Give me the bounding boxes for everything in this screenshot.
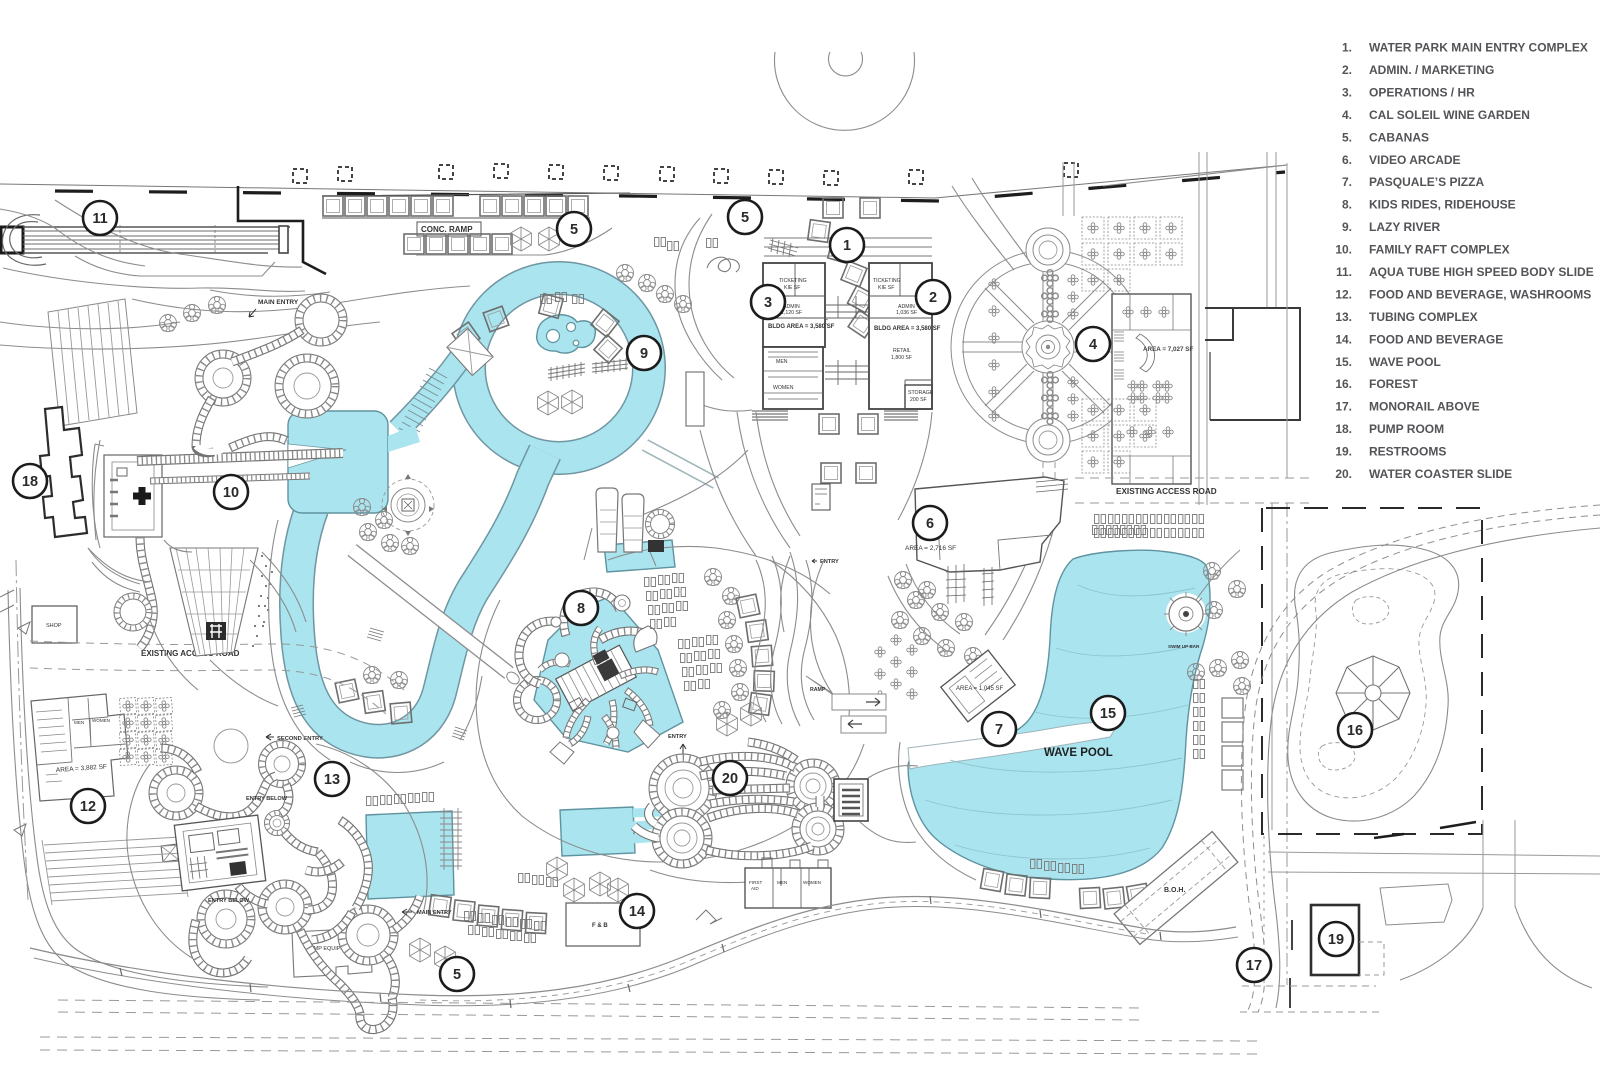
svg-text:WAVE POOL: WAVE POOL [1044,747,1113,759]
svg-text:WOMEN: WOMEN [773,385,794,391]
svg-text:WATER PARK MAIN ENTRY COMPLEX: WATER PARK MAIN ENTRY COMPLEX [1369,41,1588,55]
svg-text:FAMILY RAFT COMPLEX: FAMILY RAFT COMPLEX [1369,243,1510,257]
svg-text:12.: 12. [1335,287,1352,301]
svg-text:13.: 13. [1335,310,1352,324]
svg-text:14.: 14. [1335,332,1352,346]
svg-text:8.: 8. [1342,198,1352,212]
svg-text:AREA = 7,027 SF: AREA = 7,027 SF [1143,346,1193,353]
svg-text:4: 4 [1089,337,1097,353]
svg-text:1,800 SF: 1,800 SF [891,355,912,361]
svg-text:19: 19 [1328,932,1344,948]
svg-text:18.: 18. [1335,422,1352,436]
svg-text:OPERATIONS / HR: OPERATIONS / HR [1369,85,1475,99]
svg-text:3.: 3. [1342,85,1352,99]
svg-text:1,120 SF: 1,120 SF [781,310,802,316]
svg-text:WAVE POOL: WAVE POOL [1369,355,1441,369]
svg-text:15.: 15. [1335,355,1352,369]
svg-text:RETAIL: RETAIL [893,348,911,354]
svg-text:1.: 1. [1342,41,1352,55]
svg-text:FOREST: FOREST [1369,377,1418,391]
svg-text:FIRST: FIRST [749,880,762,885]
svg-text:KIDS RIDES, RIDEHOUSE: KIDS RIDES, RIDEHOUSE [1369,198,1516,212]
svg-text:SHOP: SHOP [46,623,62,629]
svg-text:20.: 20. [1335,467,1352,481]
svg-text:STORAGE: STORAGE [908,390,934,396]
svg-text:7.: 7. [1342,175,1352,189]
svg-text:9: 9 [640,346,648,362]
svg-text:FOOD AND BEVERAGE: FOOD AND BEVERAGE [1369,332,1503,346]
svg-text:WATER COASTER SLIDE: WATER COASTER SLIDE [1369,467,1512,481]
svg-text:WOMEN: WOMEN [803,880,821,885]
svg-text:ADMIN. / MARKETING: ADMIN. / MARKETING [1369,63,1494,77]
svg-text:CABANAS: CABANAS [1369,130,1429,144]
svg-text:AQUA TUBE HIGH SPEED BODY SLID: AQUA TUBE HIGH SPEED BODY SLIDE [1369,265,1594,279]
svg-text:20: 20 [722,771,738,787]
svg-text:MEN: MEN [776,359,788,365]
svg-text:B.O.H.: B.O.H. [1164,887,1185,894]
svg-text:VIDEO ARCADE: VIDEO ARCADE [1369,153,1461,167]
svg-text:12: 12 [80,799,96,815]
svg-text:KIE SF: KIE SF [784,285,800,291]
svg-text:6: 6 [926,516,934,532]
svg-text:17: 17 [1246,958,1262,974]
svg-text:CONC. RAMP: CONC. RAMP [421,225,473,234]
svg-text:ENTRY BELOW: ENTRY BELOW [208,898,250,904]
svg-text:RESTROOMS: RESTROOMS [1369,445,1446,459]
svg-text:AID: AID [751,886,759,891]
svg-text:5: 5 [453,967,461,983]
svg-text:MONORAIL ABOVE: MONORAIL ABOVE [1369,400,1480,414]
svg-text:FOOD AND BEVERAGE, WASHROOMS: FOOD AND BEVERAGE, WASHROOMS [1369,287,1591,301]
svg-text:11: 11 [92,211,107,227]
svg-text:4.: 4. [1342,108,1352,122]
svg-text:6.: 6. [1342,153,1352,167]
svg-text:2.: 2. [1342,63,1352,77]
svg-text:ENTRY: ENTRY [668,734,687,740]
svg-text:SWIM UP BAR: SWIM UP BAR [1168,644,1200,649]
svg-text:2: 2 [929,290,937,306]
svg-text:WOMEN: WOMEN [92,718,110,723]
svg-text:7: 7 [995,722,1003,738]
svg-text:MAIN ENTRY: MAIN ENTRY [417,910,452,916]
svg-text:AREA = 1,045 SF: AREA = 1,045 SF [956,686,1004,692]
svg-text:AREA = 2,716 SF: AREA = 2,716 SF [905,545,956,552]
svg-text:11.: 11. [1336,265,1352,279]
svg-text:5.: 5. [1342,130,1352,144]
svg-text:MAIN ENTRY: MAIN ENTRY [258,299,299,306]
svg-text:10.: 10. [1335,243,1352,257]
svg-text:16.: 16. [1335,377,1352,391]
svg-text:10: 10 [223,485,239,501]
svg-text:EXISTING ACCESS ROAD: EXISTING ACCESS ROAD [1116,487,1217,496]
svg-text:5: 5 [741,210,749,226]
svg-text:BLDG AREA = 3,580 SF: BLDG AREA = 3,580 SF [874,326,941,332]
svg-text:13: 13 [324,772,340,788]
svg-text:8: 8 [577,601,585,617]
svg-text:3: 3 [764,295,772,311]
svg-text:RAMP: RAMP [810,687,826,693]
svg-text:TICKETING: TICKETING [873,278,901,284]
svg-text:MEN: MEN [74,720,84,725]
svg-text:18: 18 [22,474,38,490]
svg-text:PASQUALE’S PIZZA: PASQUALE’S PIZZA [1369,175,1484,189]
svg-text:TUBING COMPLEX: TUBING COMPLEX [1369,310,1478,324]
svg-text:PUMP ROOM: PUMP ROOM [1369,422,1444,436]
svg-text:17.: 17. [1335,400,1352,414]
svg-text:CAL SOLEIL WINE GARDEN: CAL SOLEIL WINE GARDEN [1369,108,1530,122]
svg-text:TICKETING: TICKETING [779,278,807,284]
svg-text:19.: 19. [1335,445,1352,459]
svg-text:15: 15 [1100,706,1116,722]
svg-text:1,036 SF: 1,036 SF [896,310,917,316]
svg-text:LAZY RIVER: LAZY RIVER [1369,220,1440,234]
svg-text:1: 1 [843,238,851,254]
svg-text:F & B: F & B [592,923,608,929]
svg-text:MEN: MEN [777,880,787,885]
svg-text:16: 16 [1347,723,1363,739]
svg-text:5: 5 [570,222,578,238]
svg-text:BLDG AREA = 3,580 SF: BLDG AREA = 3,580 SF [768,324,835,330]
svg-text:9.: 9. [1342,220,1352,234]
svg-text:ENTRY BELOW: ENTRY BELOW [246,796,288,802]
svg-text:200 SF: 200 SF [910,397,927,403]
svg-text:14: 14 [629,904,645,920]
svg-text:KIE SF: KIE SF [878,285,894,291]
